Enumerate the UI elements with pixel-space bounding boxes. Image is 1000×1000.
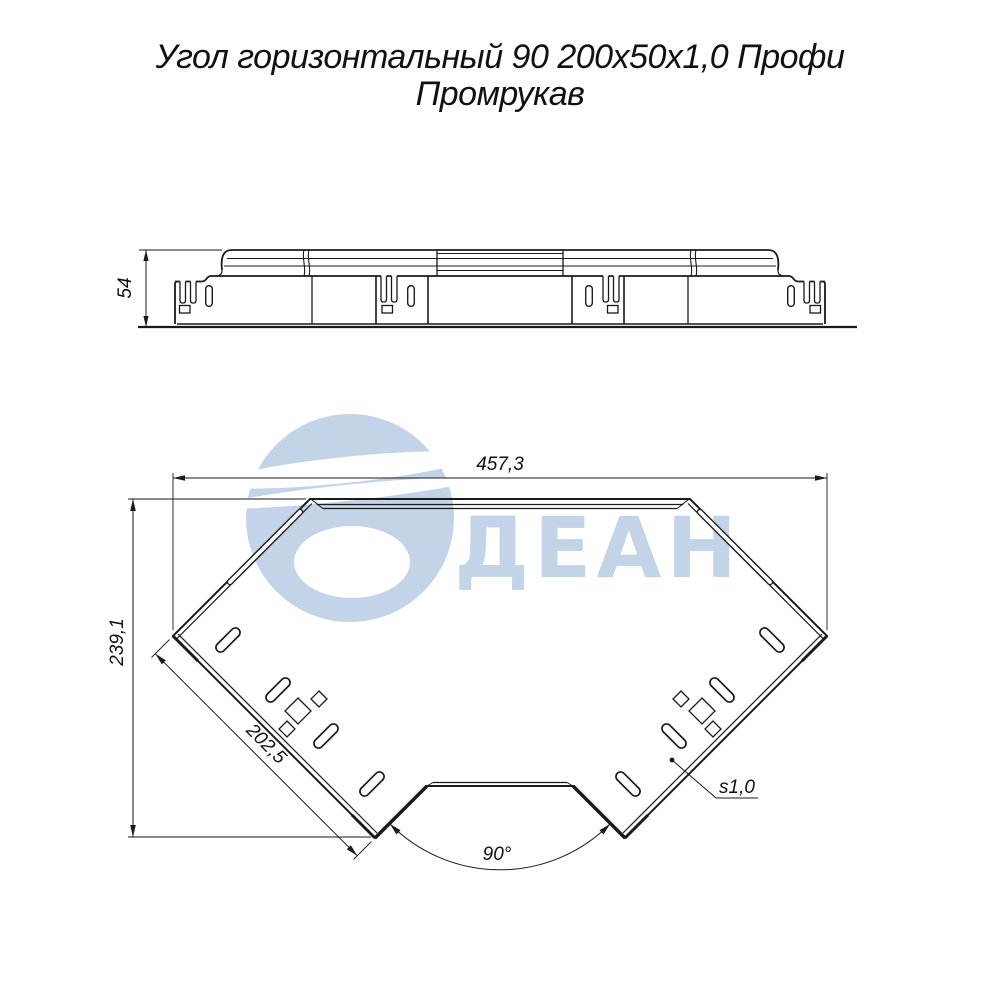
drawing-page: ДЕАН Угол горизонтальный 90 200х50х1,0 П… <box>0 0 1000 1000</box>
dim-label-54: 54 <box>115 277 136 298</box>
dim-label-s1-0: s1,0 <box>719 777 755 798</box>
dim-label-457-3: 457,3 <box>476 454 524 475</box>
drawing-title-line1: Угол горизонтальный 90 200х50х1,0 Профи <box>155 38 845 76</box>
dim-label-239-1: 239,1 <box>107 618 128 667</box>
side-view: 54 <box>115 250 857 327</box>
plan-oval-slots-right <box>621 633 780 792</box>
plan-square-holes <box>279 691 721 737</box>
side-rect-holes <box>180 306 821 314</box>
dimension-end-width: 202,5 <box>152 640 372 860</box>
dimension-thickness: s1,0 <box>670 758 758 798</box>
side-oval-slots <box>209 289 791 303</box>
technical-drawing: ДЕАН Угол горизонтальный 90 200х50х1,0 П… <box>0 0 1000 1000</box>
dim-label-202-5: 202,5 <box>241 719 290 768</box>
dimension-angle: 90° <box>390 824 610 870</box>
drawing-title-line2: Промрукав <box>416 75 585 113</box>
dim-label-90deg: 90° <box>483 844 512 865</box>
plan-oval-slots-left <box>221 633 380 792</box>
